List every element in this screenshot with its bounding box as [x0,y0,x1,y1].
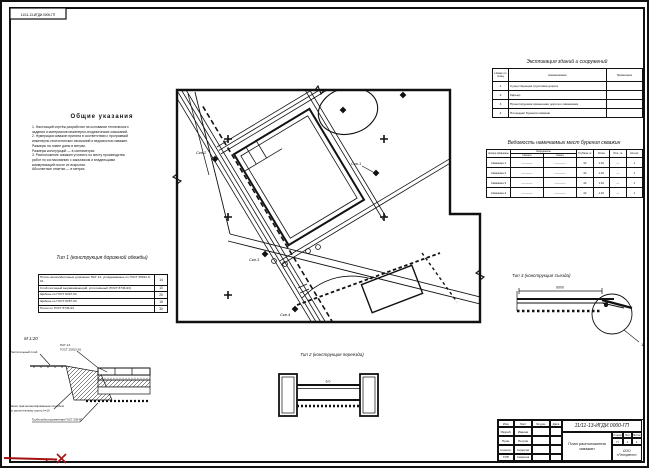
building-block [172,2,510,347]
layer-thickness: 30 [155,306,167,312]
tb-sheet: 1 [623,438,632,445]
well-depth: 10 [577,168,594,178]
well-label-3: Скв.3 [249,257,260,262]
corner-stamp-code: 11/11-13-ИГДИ.0000-ГП [21,13,56,17]
layer-thickness: 14 [155,275,167,285]
well-elev: — [610,168,627,178]
well-slope: 1:10 [593,188,610,198]
col-header-name: Наименование [509,69,607,82]
layer-thickness: 20 [155,292,167,298]
tb-name: Петров [514,436,532,445]
well-slope: 1:10 [593,178,610,188]
type2-dim: 6,0 [326,380,331,384]
col-header-no: Номер по плану [493,69,509,82]
layer-row: Плиты железобетонные дорожные ПАГ-14, ук… [39,275,167,286]
tb-doc-designation: 11/11-13-ИГДИ.0000-ГП [562,420,642,432]
callout-topsoil: Растительный слой [10,350,38,354]
tb-date [550,445,562,454]
tb-hdr-izm: Изм. [498,420,514,427]
type3-dim: 6000 [556,286,564,290]
well-qty: 1 [626,188,643,198]
well-name: Скважина 3 [487,178,511,188]
section-scale-label: М 1:20 [24,336,38,341]
well-name: Скважина 1 [487,158,511,168]
layer-text: Щебень по ГОСТ 8267-93 [39,292,155,298]
col-header-elev: Отм., м [610,150,627,158]
tb-role: Пров. [498,436,514,445]
type3-title: Тип 3 (конструкция съезда) [512,273,571,278]
explication-table: Экспликация зданий и сооружений Номер по… [492,59,642,118]
callout-grass-1: Засев трав механизированным способом [10,404,64,408]
tb-hdr-list: Лист [514,420,532,427]
tb-sign[interactable] [532,427,550,436]
well-label-1: Скв.1 [351,161,361,166]
well-depth: 10 [577,188,594,198]
col-header-slope: Уклон [593,150,610,158]
site-plan [172,2,510,347]
layer-text: Щебень по ГОСТ 8267-93 [39,299,155,305]
layer-row: Щебень по ГОСТ 8267-9320 [39,292,167,299]
layer-thickness: 15 [155,299,167,305]
table-row: Скважина 1————————101:10—1 [487,158,643,168]
type3-detail [517,288,639,342]
row-no: 4 [493,109,509,118]
tb-stage: П [612,438,623,445]
well-y: ———— [544,188,577,198]
table-row: 1Существующая грунтовая дорога [493,82,643,91]
tb-name: Смирнов [514,454,532,461]
well-x: ———— [511,188,544,198]
tb-role: ГИП [498,454,514,461]
callout-plate-2: ГОСТ 25912-91 [60,348,82,352]
tb-name: Сидоров [514,445,532,454]
row-no: 2 [493,91,509,100]
row-name: Существующая грунтовая дорога [509,82,607,91]
tb-hdr-date: Дата [550,420,562,427]
table-row: 4Площадки бурения скважин [493,109,643,118]
layer-text: Слой песчаный выравнивающий, уплотнённый… [39,286,155,292]
well-x: ———— [511,168,544,178]
row-note [607,82,643,91]
well-name: Скважина 2 [487,168,511,178]
title-block: Изм. Лист № док. Дата Разраб. Иванов Про… [497,419,644,462]
tb-name: Иванов [514,427,532,436]
well-qty: 1 [626,158,643,168]
well-y: ———— [544,168,577,178]
well-elev: — [610,188,627,198]
row-name: Карьер [509,91,607,100]
notes-title: Общие указания [32,114,172,120]
col-header-qty: Кол-во [626,150,643,158]
site-structure [361,265,422,312]
tb-sign[interactable] [532,445,550,454]
well-name: Скважина 4 [487,188,511,198]
well-elev: — [610,158,627,168]
general-notes: Общие указания 1. Настоящий чертёж разра… [32,114,172,172]
callout-grass-2: по растительному грунту h=10 [10,409,50,413]
drawing-sheet: 11/11-13-ИГДИ.0000-ГП [0,0,649,468]
tb-sign[interactable] [532,454,550,461]
table-row: Скважина 4————————101:10—1 [487,188,643,198]
row-name: Проектируемая временная дорога к скважин… [509,100,607,109]
well-label-2: Скв.2 [196,150,207,155]
tb-role: Н.контр. [498,445,514,454]
well-qty: 1 [626,178,643,188]
well-elev: — [610,178,627,188]
type2-title: Тип 2 (конструкция переезда) [300,352,364,357]
well-y: ———— [544,178,577,188]
row-name: Площадки бурения скважин [509,109,607,118]
well-leader [362,166,373,172]
tb-role: Разраб. [498,427,514,436]
layer-row: Песок по ГОСТ 8736-9330 [39,306,167,312]
tb-sheets: 1 [632,438,642,445]
well-depth: 10 [577,158,594,168]
wells-table: Ведомость намечаемых мест бурения скважи… [486,140,642,198]
well-qty: 1 [626,168,643,178]
layer-text: Плиты железобетонные дорожные ПАГ-14, ук… [39,275,155,285]
well-slope: 1:10 [593,158,610,168]
col-header-note: Примечание [607,69,643,82]
tb-sign[interactable] [532,436,550,445]
layer-row: Слой песчаный выравнивающий, уплотнённый… [39,286,167,293]
type1-title: Тип 1 (конструкция дорожной одежды) [30,255,174,261]
table-row: Скважина 2————————101:10—1 [487,168,643,178]
row-note [607,109,643,118]
tb-date [550,436,562,445]
table-row: Скважина 3————————101:10—1 [487,178,643,188]
row-no: 3 [493,100,509,109]
layer-text: Песок по ГОСТ 8736-93 [39,306,155,312]
row-note [607,91,643,100]
well-y: ———— [544,158,577,168]
type1-layer-stack: Плиты железобетонные дорожные ПАГ-14, ук… [38,274,168,313]
callout-pipe: Труба асбестоцементная ГОСТ 539-80 [32,418,83,422]
well-x: ———— [511,158,544,168]
col-header-wellno: Номер скважины [487,150,511,158]
row-no: 1 [493,82,509,91]
row-note [607,100,643,109]
well-x: ———— [511,178,544,188]
well-depth: 10 [577,178,594,188]
table-row: 3Проектируемая временная дорога к скважи… [493,100,643,109]
well-label-4: Скв.4 [280,312,291,317]
tb-name-line2: скважин [579,446,594,451]
notes-line: Абсолютные отметки — в метрах. [32,167,172,172]
layer-row: Щебень по ГОСТ 8267-9315 [39,299,167,306]
layer-thickness: 10 [155,286,167,292]
tb-date [550,454,562,461]
wells-table-title: Ведомость намечаемых мест бурения скважи… [486,140,642,146]
tb-organization: ООО «Геотрест» [612,445,642,461]
explication-title: Экспликация зданий и сооружений [492,59,642,65]
roads [188,92,480,305]
plan-border [177,90,480,322]
well-slope: 1:10 [593,168,610,178]
table-row: 2Карьер [493,91,643,100]
callout-plate-1: ПАГ-14 [60,343,70,347]
col-header-depth: Глубина, м [577,150,594,158]
tb-date [550,427,562,436]
tb-drawing-name: План расположения скважин [562,432,612,461]
tb-hdr-doc: № док. [532,420,550,427]
